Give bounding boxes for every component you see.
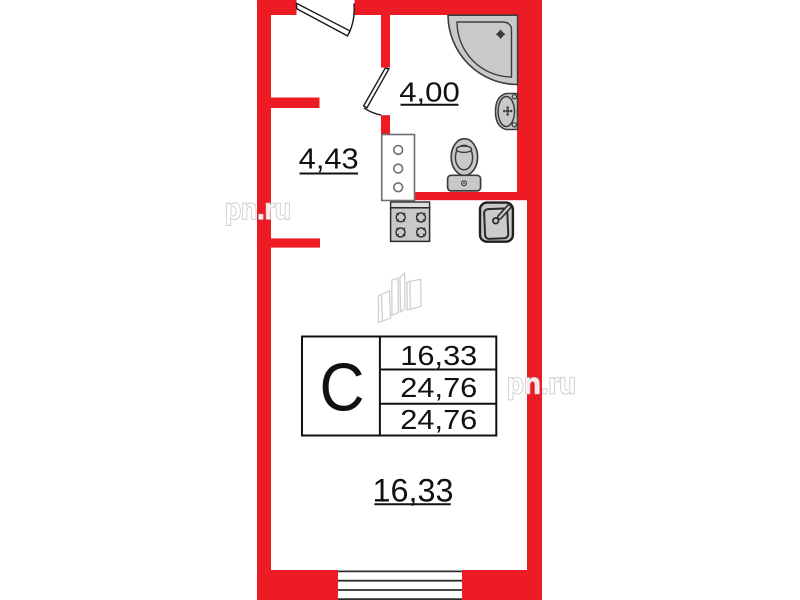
svg-text:pn.ru: pn.ru xyxy=(507,368,576,401)
svg-text:24,76: 24,76 xyxy=(400,404,477,435)
svg-text:С: С xyxy=(320,349,365,425)
svg-text:4,00: 4,00 xyxy=(399,76,460,107)
svg-text:pn.ru: pn.ru xyxy=(225,193,291,226)
svg-text:16,33: 16,33 xyxy=(373,473,454,509)
svg-text:16,33: 16,33 xyxy=(400,340,477,371)
svg-text:24,76: 24,76 xyxy=(400,372,477,403)
svg-text:4,43: 4,43 xyxy=(299,144,359,176)
